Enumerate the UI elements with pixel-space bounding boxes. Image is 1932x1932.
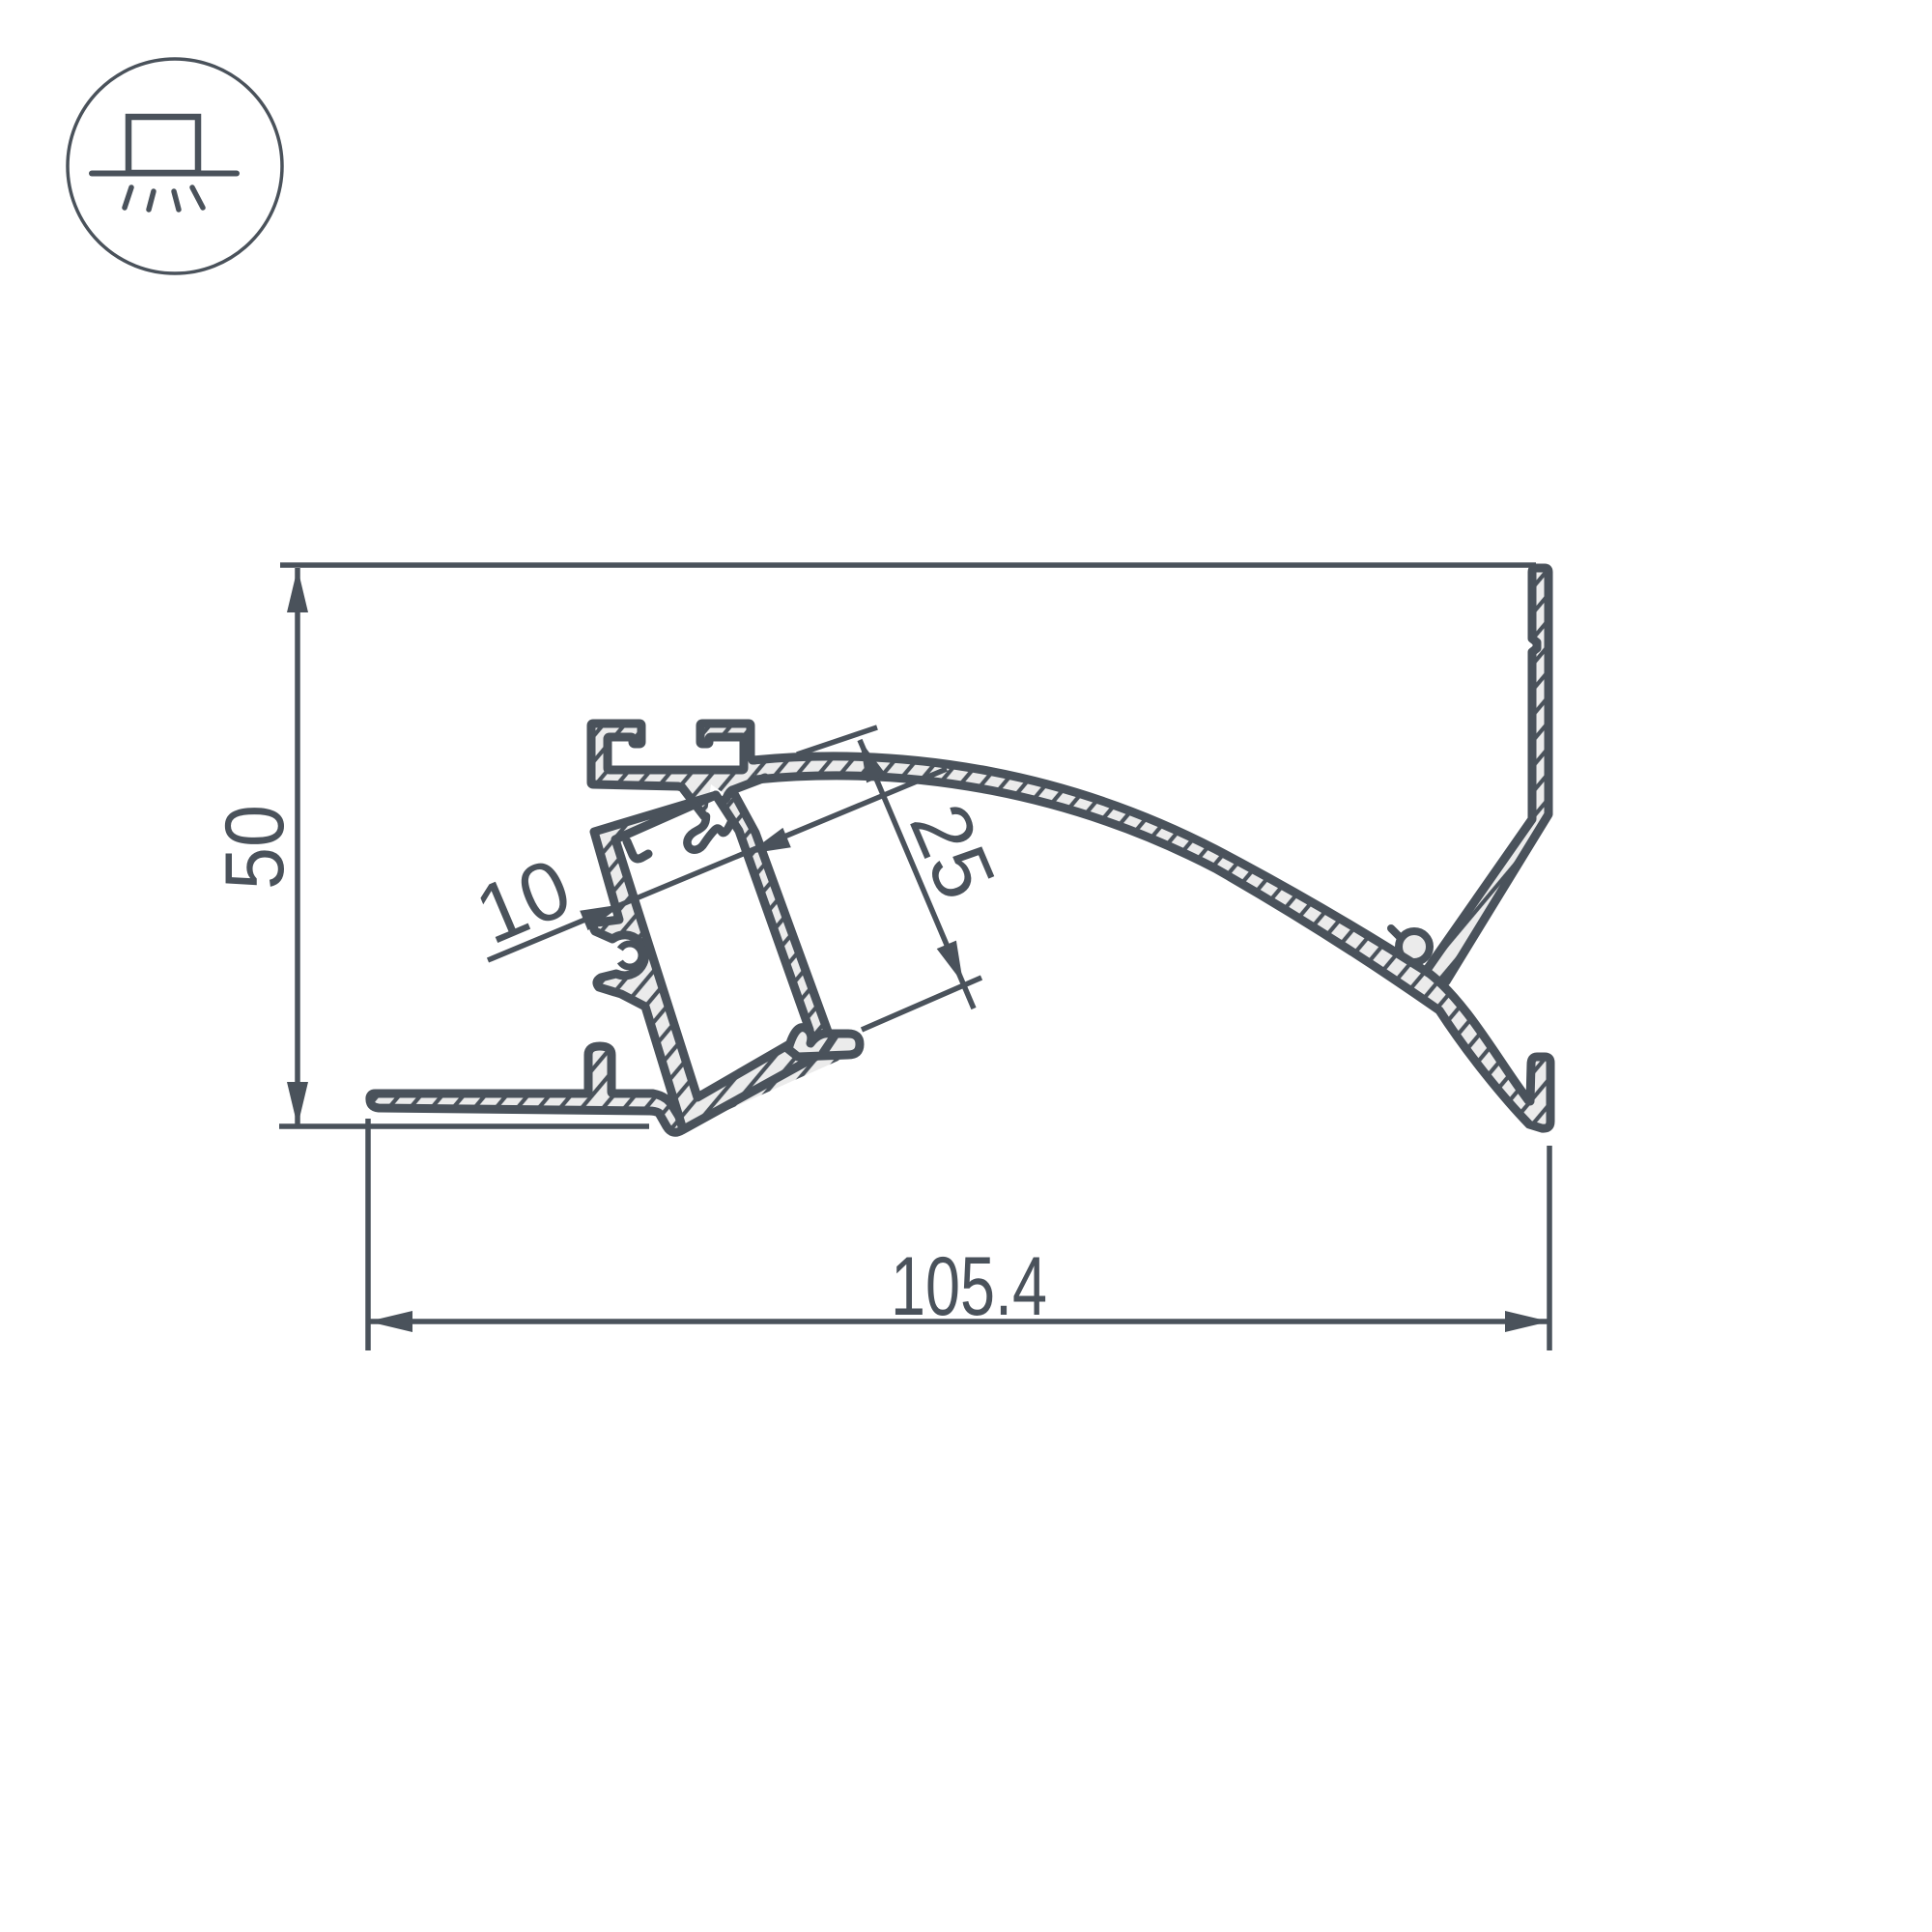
- svg-text:105.4: 105.4: [891, 1240, 1047, 1333]
- svg-text:50: 50: [209, 805, 301, 890]
